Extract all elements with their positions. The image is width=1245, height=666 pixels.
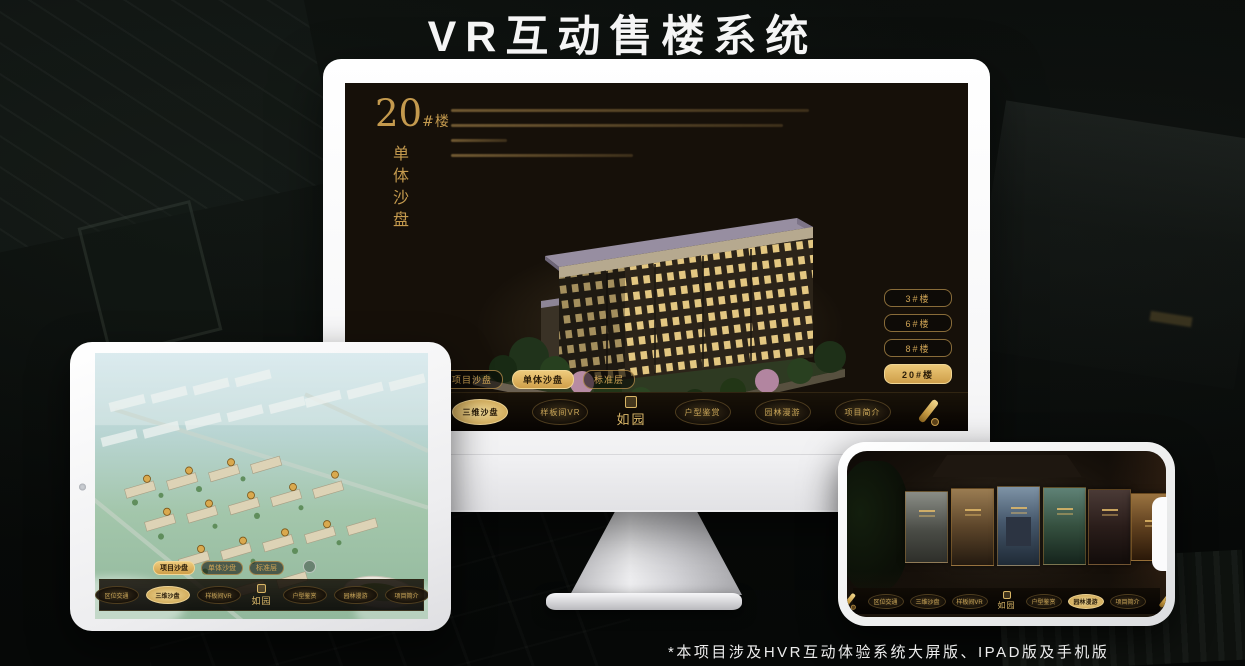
description-text-line: [451, 139, 507, 142]
menu-item-unit-gallery[interactable]: 户型鉴赏: [675, 399, 731, 425]
ruyuan-logo: 如园: [998, 591, 1016, 611]
ipad-menu-bar: 区位交通 三维沙盘 样板间VR 如园 户型鉴赏 园林漫游 项目简介: [99, 579, 424, 611]
phone-notch: [1152, 497, 1167, 571]
menu-item-showroom-vr[interactable]: 样板间VR: [197, 586, 241, 604]
footnote-text: *本项目涉及HVR互动体验系统大屏版、IPAD版及手机版: [668, 641, 1109, 662]
menu-item-garden-roam[interactable]: 园林漫游: [755, 399, 811, 425]
floor-button-group: 3#楼 6#楼 8#楼 20#楼: [884, 289, 952, 384]
background-aerial-photo: [967, 100, 1245, 389]
ruyuan-logo-text: 如园: [616, 409, 646, 428]
menu-item-project-intro[interactable]: 项目简介: [385, 586, 428, 604]
phone-screen: 区位交通 三维沙盘 样板间VR 如园 户型鉴赏 园林漫游 项目简介: [847, 451, 1166, 617]
building-number: 20: [375, 92, 422, 135]
menu-item-garden-roam[interactable]: 园林漫游: [334, 586, 378, 604]
scroll-menu-icon[interactable]: [915, 398, 941, 426]
menu-item-3d-sandtable[interactable]: 三维沙盘: [146, 586, 190, 604]
description-paragraph: [451, 109, 823, 169]
ipad-mode-buttons: 项目沙盘 单体沙盘 标准层: [153, 561, 284, 575]
description-text-line: [451, 109, 809, 112]
building-headline: 20#楼: [375, 95, 450, 132]
ruyuan-logo-text: 如园: [252, 594, 272, 607]
floor-button-3[interactable]: 3#楼: [884, 289, 952, 307]
menu-item-project-intro[interactable]: 项目简介: [835, 399, 891, 425]
menu-item-showroom-vr[interactable]: 样板间VR: [952, 594, 988, 609]
gallery-panel-terrace[interactable]: [951, 488, 994, 566]
page-title: VR互动售楼系统: [0, 2, 1245, 64]
background-plaque: [78, 200, 223, 358]
floor-button-8[interactable]: 8#楼: [884, 339, 952, 357]
monitor-mode-buttons: 项目沙盘 单体沙盘 标准层: [441, 370, 635, 389]
ipad-device: 项目沙盘 单体沙盘 标准层 区位交通 三维沙盘 样板间VR 如园 户型鉴赏 园林…: [70, 342, 451, 631]
ipad-screen: 项目沙盘 单体沙盘 标准层 区位交通 三维沙盘 样板间VR 如园 户型鉴赏 园林…: [95, 353, 428, 619]
gallery-panel-courtyard[interactable]: [905, 491, 948, 563]
menu-item-location-traffic[interactable]: 区位交通: [95, 586, 139, 604]
phone-device: 区位交通 三维沙盘 样板间VR 如园 户型鉴赏 园林漫游 项目简介: [838, 442, 1175, 626]
menu-item-garden-roam[interactable]: 园林漫游: [1068, 594, 1104, 609]
compass-icon[interactable]: [303, 560, 316, 573]
ruyuan-logo: 如园: [252, 584, 272, 607]
building-number-suffix: #楼: [422, 114, 450, 130]
monitor-stand-base: [546, 593, 742, 610]
headline-subtitle-vertical: 单体沙盘: [387, 145, 411, 233]
gallery-panel-garden[interactable]: [1043, 487, 1086, 565]
menu-item-showroom-vr[interactable]: 样板间VR: [532, 399, 588, 425]
menu-item-location-traffic[interactable]: 区位交通: [868, 594, 904, 609]
ruyuan-seal-icon: [625, 396, 637, 408]
floor-button-20[interactable]: 20#楼: [884, 364, 952, 384]
menu-item-unit-gallery[interactable]: 户型鉴赏: [283, 586, 327, 604]
menu-item-3d-sandtable[interactable]: 三维沙盘: [910, 594, 946, 609]
poster-stage: VR互动售楼系统 20#楼 单体沙盘: [0, 0, 1245, 666]
mode-button-single-sandtable[interactable]: 单体沙盘: [201, 561, 243, 575]
menu-item-3d-sandtable[interactable]: 三维沙盘: [452, 399, 508, 425]
ruyuan-seal-icon: [1003, 591, 1011, 599]
phone-menu-bar: 区位交通 三维沙盘 样板间VR 如园 户型鉴赏 园林漫游 项目简介: [853, 588, 1160, 614]
description-text-line: [451, 124, 783, 127]
mode-button-standard-floor[interactable]: 标准层: [583, 370, 635, 389]
ceiling-beam: [932, 455, 1082, 477]
mode-button-single-sandtable[interactable]: 单体沙盘: [512, 370, 574, 389]
menu-item-unit-gallery[interactable]: 户型鉴赏: [1026, 594, 1062, 609]
scroll-menu-icon[interactable]: [847, 592, 857, 609]
ruyuan-logo: 如园: [616, 396, 646, 428]
menu-item-project-intro[interactable]: 项目简介: [1110, 594, 1146, 609]
mode-button-standard-floor[interactable]: 标准层: [249, 561, 284, 575]
scroll-menu-icon[interactable]: [1156, 592, 1166, 609]
description-text-line: [451, 154, 633, 157]
ipad-camera-icon: [79, 483, 86, 490]
ruyuan-seal-icon: [257, 584, 266, 593]
gallery-panel-building[interactable]: [997, 486, 1040, 566]
mode-button-project-sandtable[interactable]: 项目沙盘: [153, 561, 195, 575]
floor-button-6[interactable]: 6#楼: [884, 314, 952, 332]
gallery-panel-lantern[interactable]: [1088, 489, 1131, 565]
ruyuan-logo-text: 如园: [998, 600, 1016, 611]
